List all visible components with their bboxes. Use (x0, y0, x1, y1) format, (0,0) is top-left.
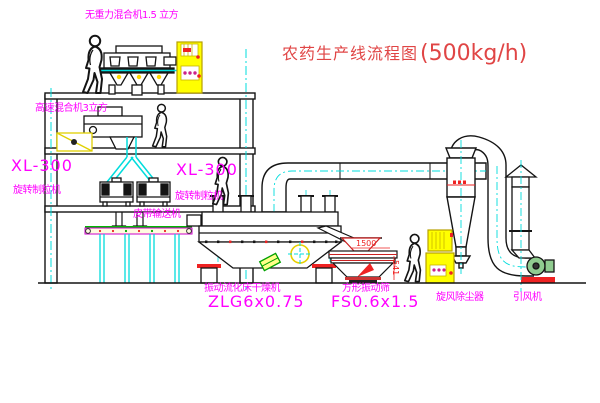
control-cabinet-top (177, 42, 202, 93)
label-fan: 引风机 (513, 293, 542, 304)
label-granulator-left-model: XL-300 (11, 158, 73, 175)
label-granulator-right-model: XL-300 (176, 162, 238, 179)
label-gravity-mixer: 无重力混合机1.5 立方 (85, 11, 178, 22)
exhaust-stack-and-fan (506, 160, 555, 292)
page-title: 农药生产线流程图 (500kg/h) (282, 44, 527, 65)
label-granulator-left-name: 旋转制粒机 (13, 186, 61, 197)
person-icon (83, 36, 102, 93)
control-cabinet-right (426, 230, 454, 283)
flow-diagram-canvas: 无重力混合机1.5 立方 农药生产线流程图 (500kg/h) 高速混合机3立方… (0, 0, 600, 403)
granulators (100, 178, 170, 206)
person-icon (405, 234, 421, 281)
label-granulator-right-name: 旋转制粒机 (175, 192, 223, 203)
label-high-speed-mixer: 高速混合机3立方 (35, 104, 107, 115)
gravity-mixer (92, 46, 182, 95)
title-capacity: (500kg/h) (420, 44, 527, 65)
belt-conveyor (85, 227, 192, 283)
label-cyclone: 旋风除尘器 (436, 293, 484, 304)
label-dryer-model: ZLG6x0.75 (208, 294, 305, 311)
title-text: 农药生产线流程图 (282, 46, 418, 63)
label-sieve-model: FS0.6x1.5 (331, 294, 419, 311)
person-icon (153, 104, 167, 146)
dim-sieve-height: 541 (391, 260, 399, 275)
label-belt-conveyor: 皮带输送机 (133, 210, 181, 221)
dim-sieve-width: 1500 (356, 240, 376, 248)
